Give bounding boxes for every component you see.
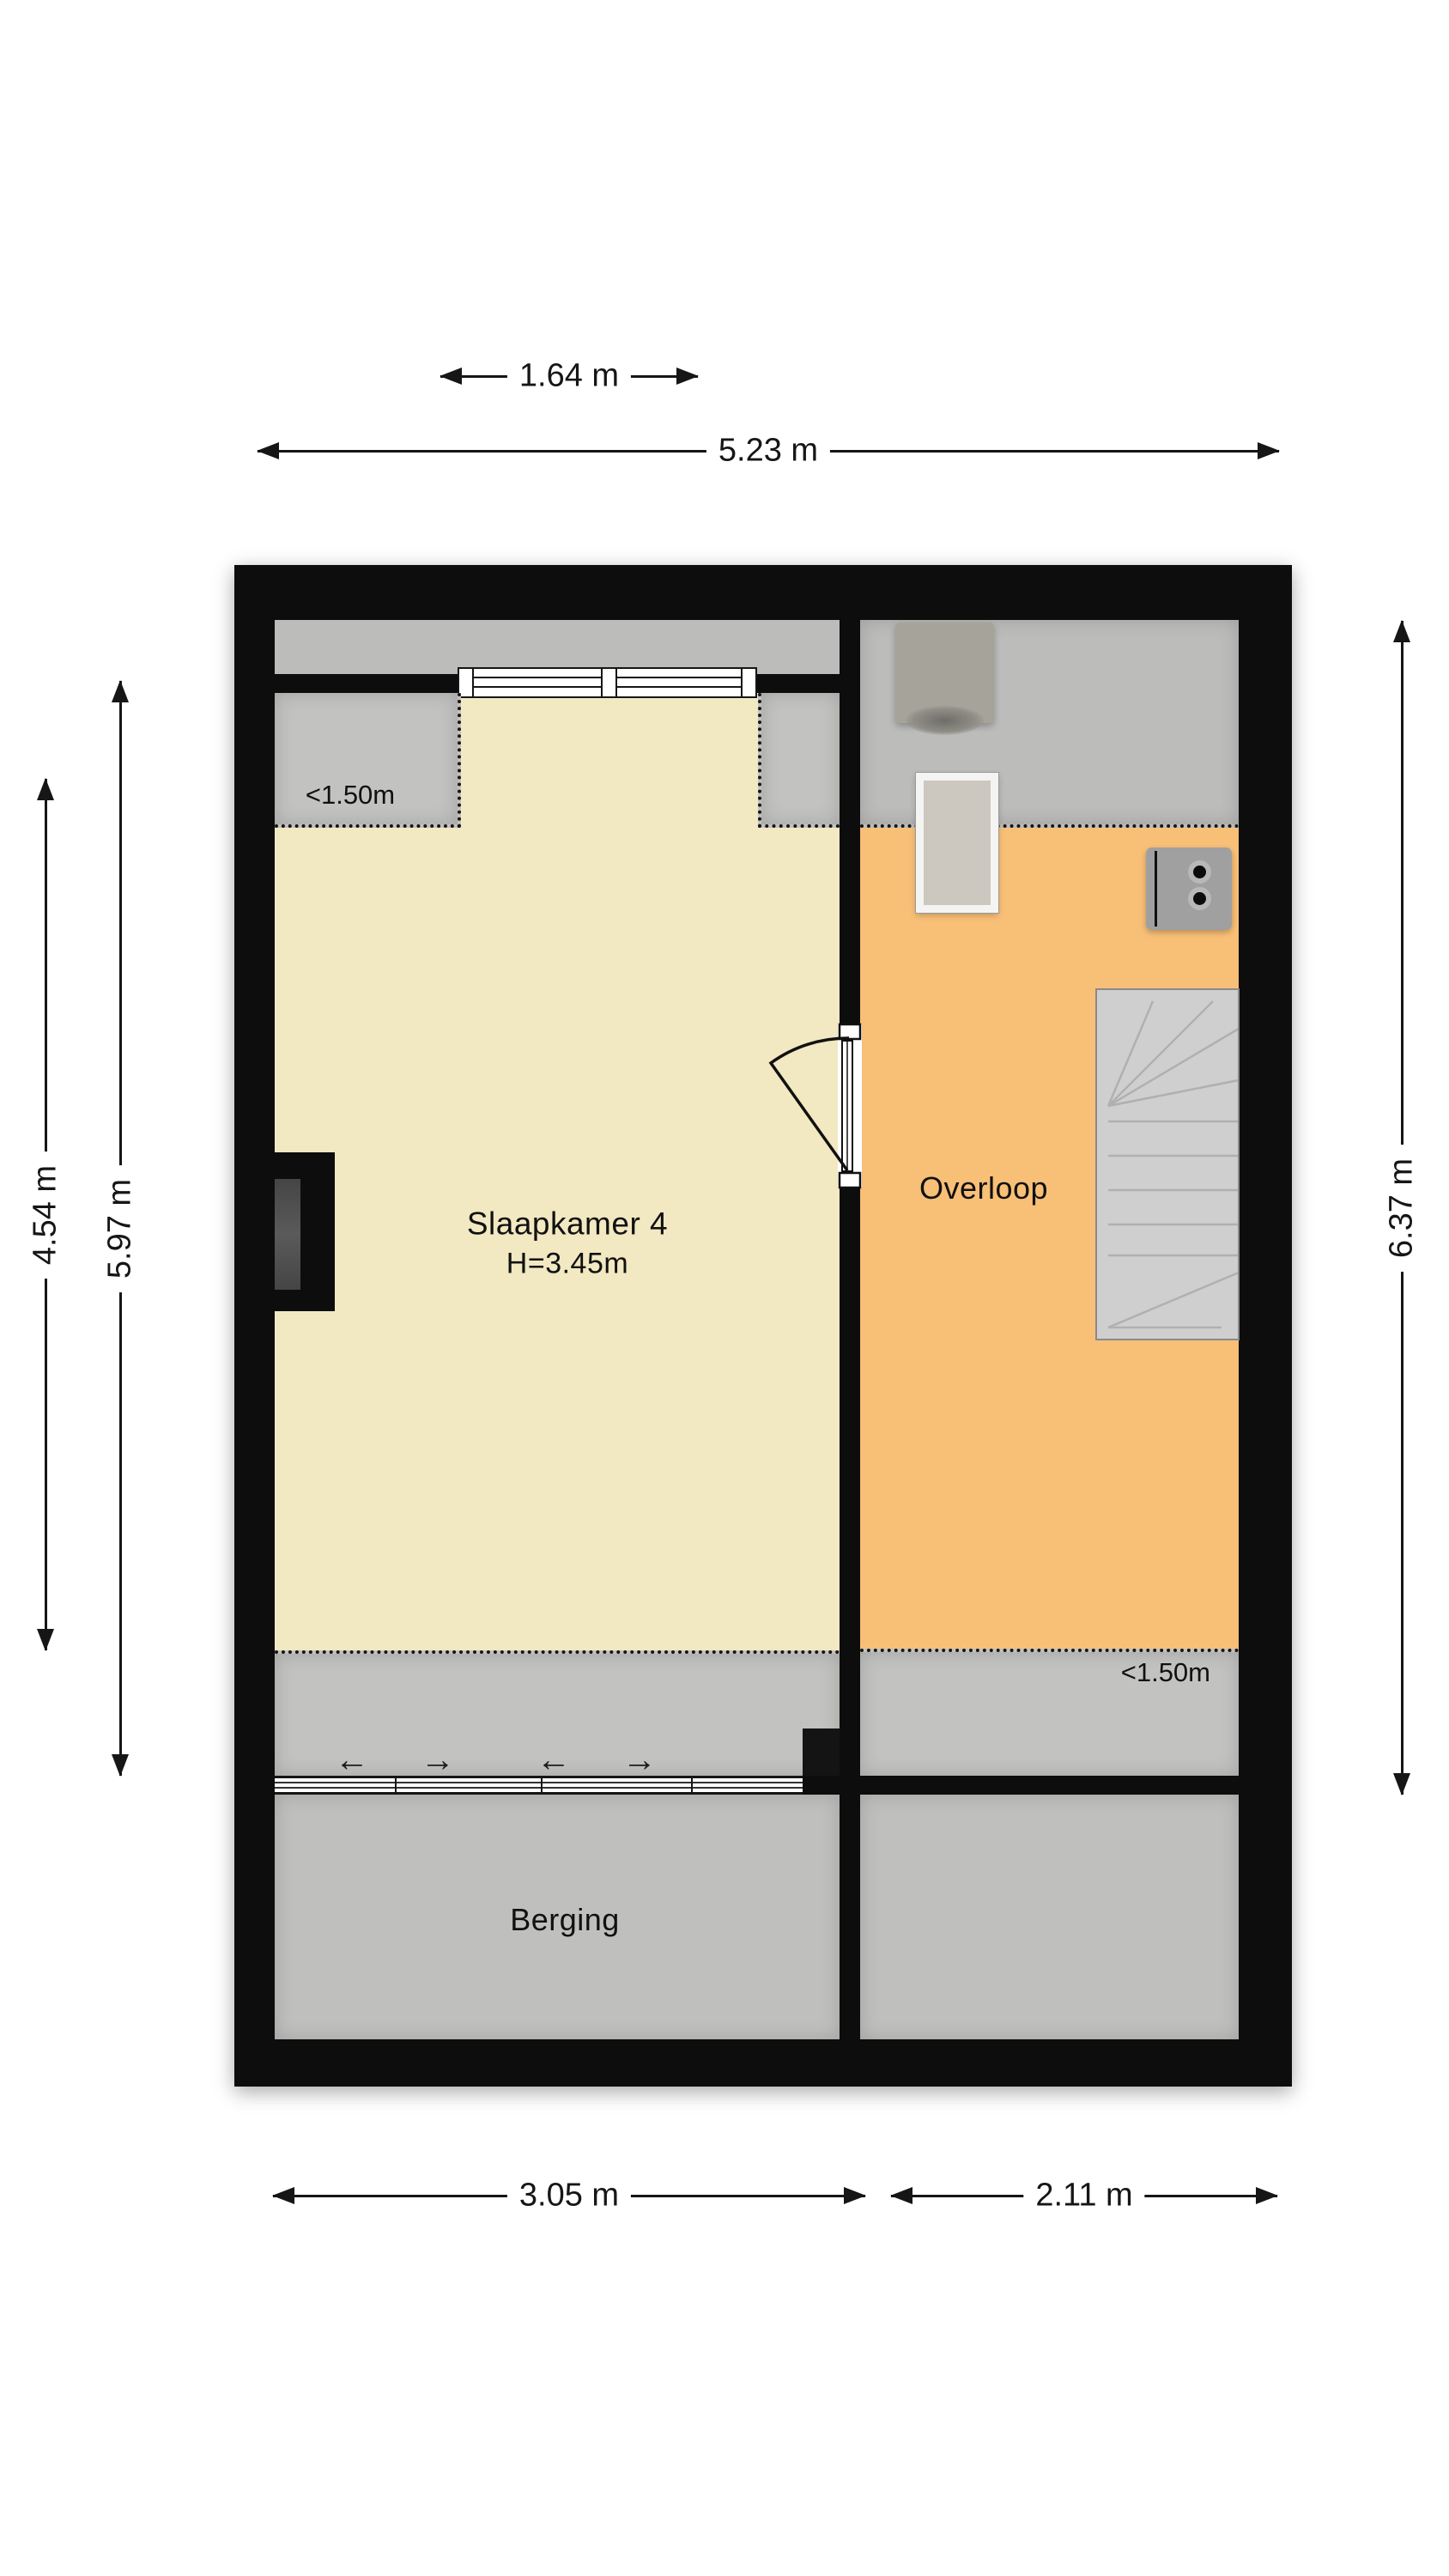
floor-plan: <1.50m ← → ← → [234, 565, 1292, 2087]
stairs [1096, 989, 1239, 1340]
room-label-overloop: Overloop [919, 1170, 1048, 1206]
dimension-storage-width: 3.05 m [273, 2177, 865, 2215]
dimension-total-width: 5.23 m [258, 432, 1279, 470]
dimension-window-width: 1.64 m [440, 357, 698, 395]
dimension-bedroom-inner-height: 4.54 m [27, 779, 64, 1650]
dimension-landing-height: 6.37 m [1383, 621, 1421, 1795]
door-swing [771, 1024, 862, 1188]
slaapkamer-ceiling-height: H=3.45m [467, 1248, 668, 1281]
dimension-bottom-right-width: 2.11 m [891, 2177, 1277, 2215]
room-label-berging: Berging [510, 1902, 620, 1938]
low-clearance-label-right: <1.50m [1007, 1657, 1210, 1688]
berging-name: Berging [510, 1902, 620, 1937]
overloop-name: Overloop [919, 1170, 1048, 1206]
plan-symbols-overlay [234, 565, 1292, 2087]
dimension-bedroom-full-height: 5.97 m [101, 681, 139, 1776]
slaapkamer-name: Slaapkamer 4 [467, 1206, 668, 1242]
floorplan-canvas: <1.50m ← → ← → [0, 0, 1449, 2576]
room-label-slaapkamer: Slaapkamer 4 H=3.45m [467, 1206, 668, 1281]
